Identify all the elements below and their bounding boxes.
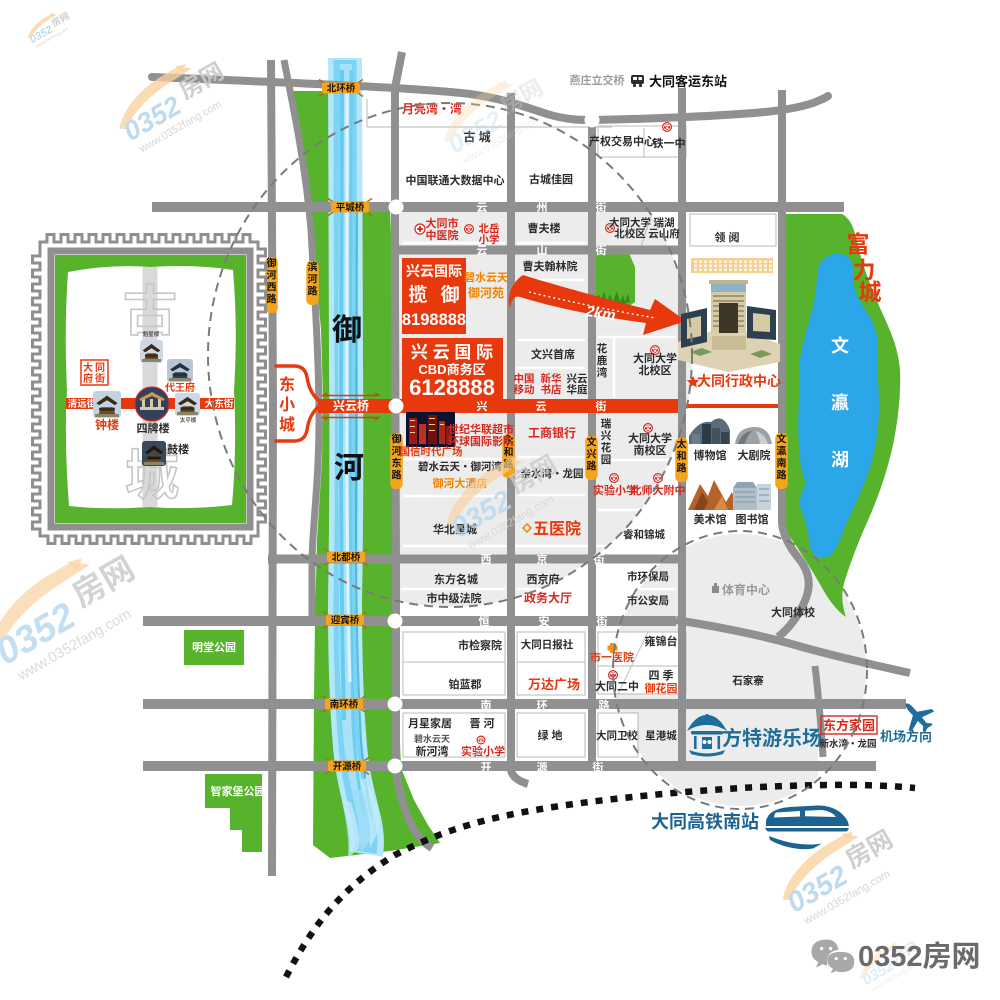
svg-text:街: 街 (597, 613, 608, 629)
svg-text:街: 街 (596, 398, 607, 414)
svg-text:文: 文 (466, 225, 472, 234)
svg-text:城: 城 (279, 411, 295, 435)
svg-text:南环桥: 南环桥 (330, 697, 359, 711)
svg-text:市检察院: 市检察院 (458, 637, 502, 653)
svg-text:代王府: 代王府 (165, 379, 195, 394)
svg-text:古城佳园: 古城佳园 (529, 171, 573, 187)
svg-text:绿 地: 绿 地 (537, 727, 562, 743)
svg-text:曹夫翰林院: 曹夫翰林院 (523, 258, 578, 274)
svg-text:迎宾桥: 迎宾桥 (331, 613, 360, 627)
svg-text:太平楼: 太平楼 (180, 416, 197, 424)
svg-text:燕庄立交桥: 燕庄立交桥 (570, 72, 625, 88)
svg-text:州: 州 (537, 199, 548, 215)
svg-text:工商银行: 工商银行 (528, 424, 576, 441)
svg-text:北校区: 北校区 (614, 226, 646, 241)
svg-text:产权交易中心: 产权交易中心 (589, 133, 655, 149)
svg-text:博物馆: 博物馆 (694, 447, 727, 463)
svg-text:西京府: 西京府 (527, 571, 560, 587)
svg-text:文兴首席: 文兴首席 (531, 346, 575, 362)
svg-text:兴云桥: 兴云桥 (333, 397, 369, 414)
svg-text:明堂公园: 明堂公园 (192, 639, 236, 655)
svg-text:云: 云 (536, 398, 547, 414)
svg-text:园: 园 (601, 452, 612, 467)
svg-text:瀛: 瀛 (831, 389, 849, 415)
svg-text:0352房网: 0352房网 (858, 933, 981, 975)
svg-text:大同日报社: 大同日报社 (521, 637, 574, 652)
svg-text:铂蓝郡: 铂蓝郡 (449, 676, 482, 692)
svg-text:路: 路 (587, 458, 597, 473)
svg-text:平城桥: 平城桥 (336, 200, 365, 214)
svg-text:石家寨: 石家寨 (732, 673, 764, 688)
svg-text:小学: 小学 (479, 232, 500, 247)
svg-text:6128888: 6128888 (409, 370, 495, 402)
svg-text:实验小学: 实验小学 (461, 743, 505, 759)
svg-text:中国联通大数据中心: 中国联通大数据中心 (406, 172, 505, 188)
svg-text:市一医院: 市一医院 (590, 649, 634, 665)
svg-text:四牌楼: 四牌楼 (137, 420, 170, 436)
svg-text:智家堡公园: 智家堡公园 (211, 783, 266, 799)
svg-text:美术馆: 美术馆 (694, 511, 727, 527)
svg-text:大同行政中心: 大同行政中心 (697, 371, 781, 391)
svg-text:东方名城: 东方名城 (434, 571, 478, 587)
svg-text:钟楼: 钟楼 (95, 416, 119, 433)
svg-text:街: 街 (596, 242, 607, 258)
svg-text:晋 河: 晋 河 (469, 715, 494, 731)
svg-text:路: 路 (308, 283, 318, 298)
svg-text:清远街: 清远街 (68, 396, 97, 410)
svg-text:魁星楼: 魁星楼 (143, 330, 160, 338)
svg-text:新河湾: 新河湾 (416, 743, 449, 759)
svg-text:南: 南 (481, 697, 492, 713)
svg-text:雍锦台: 雍锦台 (645, 633, 678, 649)
svg-text:大东街: 大东街 (205, 396, 234, 410)
svg-text:东方家园: 东方家园 (823, 715, 875, 734)
svg-text:京: 京 (537, 551, 548, 567)
svg-text:市中级法院: 市中级法院 (427, 590, 482, 606)
svg-text:御河苑: 御河苑 (468, 284, 504, 301)
svg-text:南校区: 南校区 (634, 442, 667, 458)
svg-text:御花园: 御花园 (645, 680, 678, 696)
svg-text:移动: 移动 (514, 382, 535, 397)
svg-text:大同卫校: 大同卫校 (596, 728, 638, 743)
svg-text:曹夫楼: 曹夫楼 (528, 220, 561, 236)
svg-text:御: 御 (332, 305, 362, 349)
svg-text:源: 源 (537, 759, 548, 775)
svg-text:北环桥: 北环桥 (327, 81, 356, 95)
svg-text:文: 文 (831, 332, 849, 358)
svg-text:街: 街 (593, 759, 604, 775)
svg-text:城: 城 (859, 273, 882, 307)
svg-text:领 阅: 领 阅 (714, 229, 739, 245)
svg-text:鼓楼: 鼓楼 (167, 441, 189, 457)
svg-text:环球国际影院: 环球国际影院 (448, 433, 514, 449)
svg-text:云: 云 (477, 199, 488, 215)
svg-text:湾: 湾 (597, 365, 608, 380)
svg-text:路: 路 (677, 460, 687, 475)
svg-text:环: 环 (537, 697, 548, 713)
svg-text:碧水云天: 碧水云天 (464, 269, 508, 285)
svg-text:路: 路 (599, 697, 610, 713)
svg-text:恒: 恒 (479, 613, 490, 629)
svg-text:华庭: 华庭 (567, 382, 588, 397)
svg-text:府: 府 (83, 370, 93, 385)
svg-text:大同二中: 大同二中 (595, 678, 639, 694)
svg-text:河: 河 (334, 443, 364, 487)
svg-text:书店: 书店 (541, 382, 562, 397)
svg-text:湖: 湖 (831, 446, 849, 472)
svg-text:山: 山 (537, 242, 548, 258)
svg-text:市环保局: 市环保局 (627, 569, 669, 584)
svg-text:月亮湾·湾: 月亮湾·湾 (402, 100, 462, 117)
svg-text:北都桥: 北都桥 (332, 550, 361, 564)
svg-text:揽 御: 揽 御 (408, 280, 463, 307)
svg-text:路: 路 (392, 467, 402, 482)
svg-text:安: 安 (539, 613, 550, 629)
svg-text:街: 街 (596, 199, 607, 215)
svg-text:大剧院: 大剧院 (738, 447, 771, 463)
svg-text:中医院: 中医院 (426, 227, 459, 243)
svg-text:大同客运东站: 大同客运东站 (649, 71, 727, 90)
svg-text:月星家居: 月星家居 (408, 715, 452, 731)
svg-text:开: 开 (481, 759, 492, 775)
svg-text:街: 街 (95, 370, 105, 385)
svg-text:图书馆: 图书馆 (736, 511, 769, 527)
svg-text:北校区: 北校区 (639, 362, 672, 378)
svg-text:文: 文 (664, 123, 670, 132)
svg-text:开源桥: 开源桥 (333, 759, 362, 773)
svg-text:铁一中: 铁一中 (653, 135, 686, 151)
svg-text:大同体校: 大同体校 (771, 604, 815, 620)
svg-text:万达广场: 万达广场 (528, 674, 580, 693)
svg-text:路: 路 (777, 467, 787, 482)
svg-text:体育中心: 体育中心 (722, 581, 770, 598)
svg-text:五医院: 五医院 (533, 515, 581, 539)
svg-text:8198888: 8198888 (402, 306, 466, 330)
svg-text:兴云国际: 兴云国际 (406, 261, 462, 281)
svg-text:方特游乐场: 方特游乐场 (722, 722, 822, 751)
svg-text:睿和锦城: 睿和锦城 (623, 527, 665, 542)
svg-text:星港城: 星港城 (645, 728, 677, 743)
svg-text:大同高铁南站: 大同高铁南站 (651, 808, 759, 834)
svg-text:西: 西 (481, 551, 492, 567)
svg-text:路: 路 (267, 291, 277, 306)
